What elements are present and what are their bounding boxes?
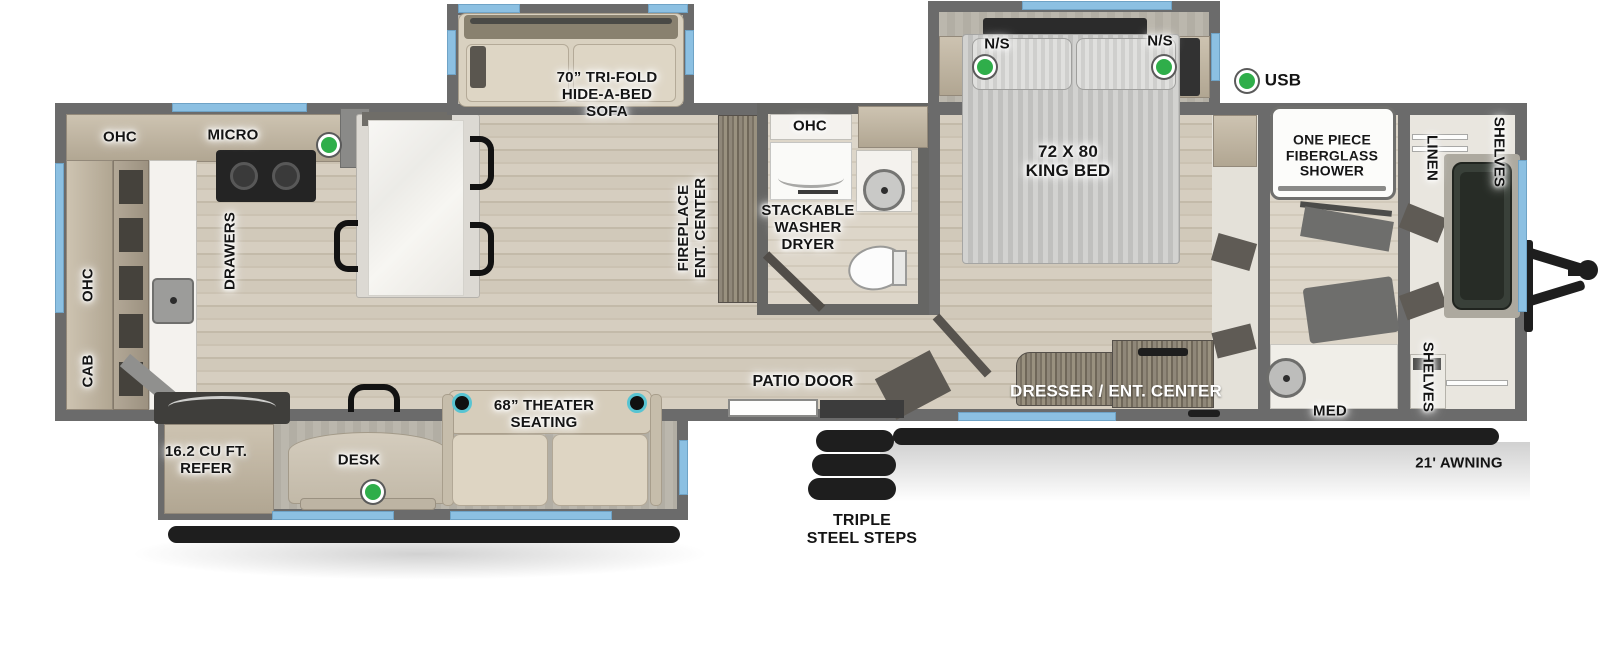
patio-door-panel <box>728 399 818 417</box>
label-awning: 21' AWNING <box>1415 456 1503 473</box>
sofa-slide-side-window-l <box>447 30 456 75</box>
bedroom-slide-side-window <box>1211 33 1220 81</box>
island-chair-3 <box>334 220 358 272</box>
label-linen: LINEN <box>1423 135 1440 181</box>
entry-step-2 <box>812 454 896 476</box>
drawer-1 <box>119 170 143 204</box>
label-king-bed: 72 X 80 KING BED <box>1026 142 1111 180</box>
shower-inner-line <box>1278 186 1386 191</box>
bedroom-frontbath-wall <box>1258 115 1270 409</box>
bedroom-left-wall <box>928 115 940 315</box>
bottom-slide-window-1 <box>272 511 394 520</box>
usb-dot-nightstand-right <box>1153 56 1175 78</box>
rear-wall-window <box>55 163 64 313</box>
fireplace-ent-center <box>718 115 758 303</box>
burner-right <box>272 162 300 190</box>
frontbath-closet-wall <box>1398 115 1410 409</box>
sofa-side-table <box>470 46 486 88</box>
kitchen-top-window <box>172 103 307 112</box>
washer-door-arc <box>778 168 844 188</box>
label-ns-left: N/S <box>984 37 1010 54</box>
label-fireplace: FIREPLACE ENT. CENTER <box>676 178 710 279</box>
label-refer: 16.2 CU FT. REFER <box>165 444 247 478</box>
rv-floorplan: OHC MICRO OHC CAB DRAWERS 70” TRI-FOLD H… <box>0 0 1600 652</box>
burner-left <box>230 162 258 190</box>
entry-step-1 <box>816 430 894 452</box>
label-dresser: DRESSER / ENT. CENTER <box>1010 381 1222 400</box>
label-steps: TRIPLE STEEL STEPS <box>807 512 917 548</box>
label-ns-right: N/S <box>1147 34 1173 51</box>
bottom-slide-side-window <box>679 440 688 495</box>
label-ohc-kitchen-top: OHC <box>103 130 137 147</box>
label-shelves-bottom: SHELVES <box>1419 342 1436 412</box>
theater-cupholder-right <box>627 393 647 413</box>
theater-cupholder-left <box>452 393 472 413</box>
label-cab: CAB <box>81 354 98 387</box>
dresser-remote <box>1188 410 1220 417</box>
entry-step-3 <box>808 478 896 500</box>
usb-dot-kitchen <box>318 134 340 156</box>
toilet-tank <box>892 250 907 286</box>
label-sofa: 70” TRI-FOLD HIDE-A-BED SOFA <box>557 70 658 120</box>
label-theater: 68” THEATER SEATING <box>494 398 594 432</box>
bedroom-tv <box>1178 38 1200 96</box>
label-shelves-top: SHELVES <box>1490 117 1507 187</box>
island-chair-2 <box>470 222 494 276</box>
usb-legend-label: USB <box>1265 70 1302 89</box>
wardrobe-top-cabinet <box>1213 115 1257 167</box>
usb-dot-desk <box>362 481 384 503</box>
washer-handle <box>798 190 838 194</box>
front-wall-window <box>1518 160 1527 312</box>
bedroom-slide-top-window <box>1022 1 1172 10</box>
label-patio-door: PATIO DOOR <box>753 373 854 391</box>
sofa-back-line <box>470 18 672 24</box>
label-desk: DESK <box>338 453 380 470</box>
bedroom-bottom-window <box>958 412 1116 421</box>
drawer-4 <box>119 314 143 348</box>
awning-bar-left <box>168 526 680 543</box>
label-mid-bath-ohc: OHC <box>793 119 827 136</box>
drawer-2 <box>119 218 143 252</box>
kitchen-faucet <box>170 297 177 304</box>
awning-bar-right <box>893 428 1499 445</box>
closet-tv-screen <box>1460 172 1504 300</box>
island-chair-1 <box>470 136 494 190</box>
theater-arm-right <box>650 394 662 506</box>
refrigerator-handle-arc <box>168 396 276 418</box>
sofa-slide-window-right <box>648 4 688 13</box>
label-med: MED <box>1313 404 1347 421</box>
drawer-3 <box>119 266 143 300</box>
front-bath-sink-drain <box>1283 375 1290 382</box>
usb-dot-nightstand-left <box>974 56 996 78</box>
theater-seat-right <box>552 434 648 506</box>
sofa-slide-side-window-r <box>685 30 694 75</box>
sofa-slide-window-left <box>458 4 520 13</box>
mid-bath-corner-cabinet <box>858 106 928 148</box>
label-micro: MICRO <box>208 128 259 145</box>
label-ohc-kitchen-side: OHC <box>81 268 98 302</box>
label-washer-dryer: STACKABLE WASHER DRYER <box>761 203 854 253</box>
mid-bath-sink-drain <box>881 187 888 194</box>
usb-legend-dot <box>1236 70 1258 92</box>
island-countertop <box>368 120 464 296</box>
bottom-slide-window-2 <box>450 511 612 520</box>
hitch-arm-bottom <box>1526 280 1586 307</box>
label-shower: ONE PIECE FIBERGLASS SHOWER <box>1286 132 1378 179</box>
hitch-coupler-knob <box>1578 260 1598 280</box>
closet-bottom-shelf <box>1446 380 1508 386</box>
label-drawers: DRAWERS <box>223 212 240 290</box>
theater-seat-left <box>452 434 548 506</box>
desk-chair <box>348 384 400 412</box>
dresser-soundbar <box>1138 348 1188 356</box>
patio-door-opening <box>820 400 904 418</box>
